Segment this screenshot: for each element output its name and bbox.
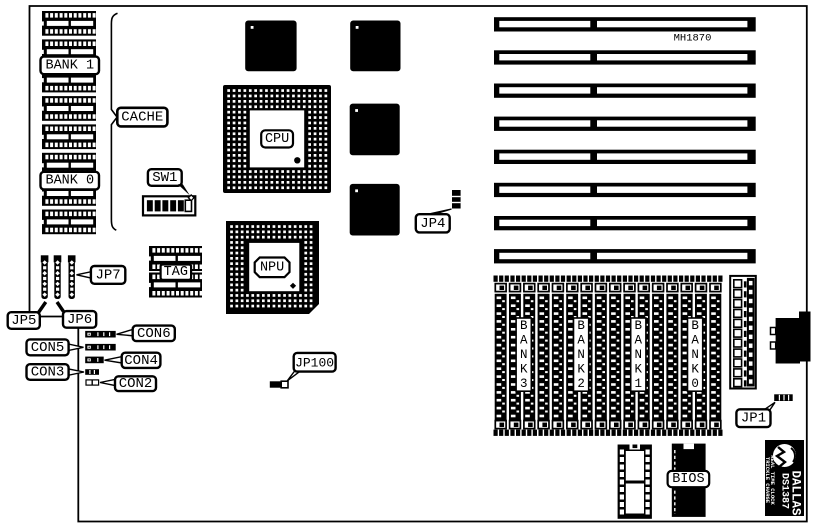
svg-text:B: B [635, 319, 643, 333]
svg-text:K: K [691, 363, 699, 377]
svg-text:JP100: JP100 [295, 355, 334, 370]
svg-text:A: A [691, 333, 699, 347]
svg-text:N: N [691, 348, 699, 362]
svg-text:DALLAS: DALLAS [789, 470, 803, 516]
svg-text:3: 3 [520, 377, 528, 391]
svg-text:MH1870: MH1870 [674, 33, 712, 45]
svg-text:CACHE: CACHE [121, 110, 163, 126]
svg-text:NPU: NPU [260, 260, 284, 275]
svg-text:K: K [520, 363, 528, 377]
svg-text:CON3: CON3 [31, 365, 65, 381]
svg-text:CPU: CPU [265, 132, 289, 147]
svg-text:JP4: JP4 [420, 216, 445, 232]
svg-text:A: A [520, 333, 528, 347]
svg-text:BIOS: BIOS [672, 472, 704, 487]
svg-text:TAG: TAG [164, 265, 188, 280]
svg-text:DS1387: DS1387 [779, 473, 790, 509]
svg-text:JP7: JP7 [95, 267, 120, 283]
svg-text:A: A [635, 333, 643, 347]
svg-text:B: B [577, 319, 585, 333]
svg-text:CON6: CON6 [137, 326, 171, 342]
svg-text:N: N [520, 348, 528, 362]
svg-text:K: K [577, 363, 585, 377]
svg-text:CON4: CON4 [124, 353, 158, 369]
svg-text:B: B [520, 319, 528, 333]
svg-text:JP6: JP6 [67, 312, 92, 328]
svg-text:SW1: SW1 [152, 170, 177, 186]
svg-text:B: B [691, 319, 699, 333]
svg-text:1: 1 [635, 377, 643, 391]
svg-text:JP5: JP5 [11, 313, 36, 329]
svg-text:K: K [635, 363, 643, 377]
svg-text:BANK 0: BANK 0 [45, 174, 94, 189]
svg-text:N: N [635, 348, 643, 362]
svg-text:JP1: JP1 [741, 411, 766, 427]
svg-text:N: N [577, 348, 585, 362]
svg-text:TRICKLE CHARGE: TRICKLE CHARGE [764, 457, 771, 504]
svg-text:CON5: CON5 [31, 340, 65, 356]
svg-text:2: 2 [577, 377, 585, 391]
svg-text:BANK 1: BANK 1 [45, 58, 94, 73]
svg-text:0: 0 [691, 377, 699, 391]
svg-text:A: A [577, 333, 585, 347]
svg-text:CON2: CON2 [119, 376, 153, 392]
